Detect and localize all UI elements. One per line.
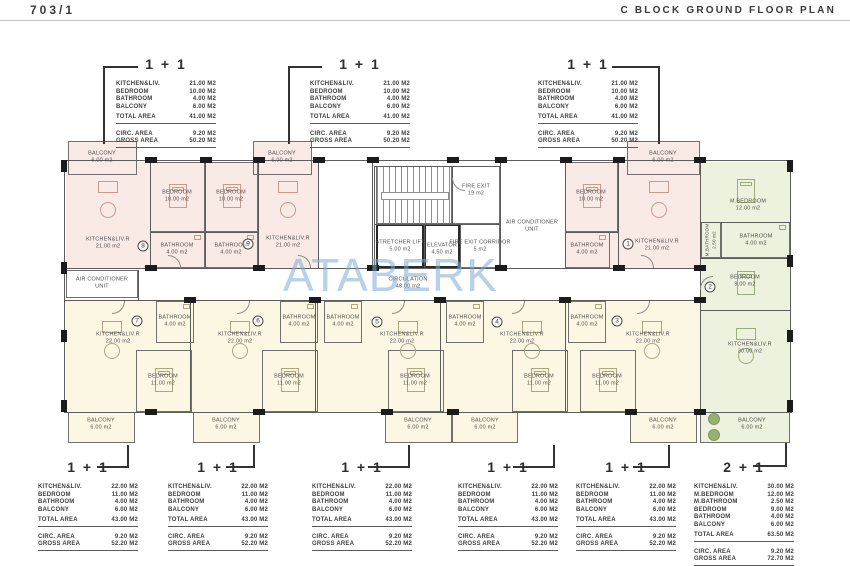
room-label-kitchen-unit1: KITCHEN&LIV.R21.00 m2 xyxy=(624,239,690,252)
spec-label: BALCONY xyxy=(310,104,341,112)
spec-value: 52.20 M2 xyxy=(640,541,676,549)
room-name: AIR CONDITIONER UNIT xyxy=(499,220,565,233)
spec-label: GROSS AREA xyxy=(458,541,500,549)
spec-label: TOTAL AREA xyxy=(310,114,350,122)
room-label-bedroom-unit5: BEDROOM11.00 m2 xyxy=(382,374,448,387)
spec-label: TOTAL AREA xyxy=(538,114,578,122)
structural-column xyxy=(381,409,393,415)
spec-value: 9.20 M2 xyxy=(602,131,638,139)
wall-segment xyxy=(64,412,792,413)
circulation-area-row: CIRC. AREA9.20 M2 xyxy=(538,131,638,139)
spec-value: 12.00 M2 xyxy=(758,492,794,500)
gross-area-row: GROSS AREA50.20 M2 xyxy=(538,138,638,148)
spec-row: BALCONY6.00 M2 xyxy=(312,507,412,515)
spec-value: 9.20 M2 xyxy=(376,534,412,542)
unit-number-9: 9 xyxy=(243,239,254,250)
spec-row: BATHROOM4.00 M2 xyxy=(458,499,558,507)
unit-type-title: 1 + 1 xyxy=(310,56,410,72)
room-label-kitchen-unit7: KITCHEN&LIV.R22.00 m2 xyxy=(85,332,151,345)
room-area: 11.00 m2 xyxy=(382,380,448,387)
title-bar: 703/1 C BLOCK GROUND FLOOR PLAN xyxy=(0,0,850,21)
unit-number-6: 6 xyxy=(253,316,264,327)
unit-spec-table-bottom-5: 2 + 1KITCHEN&LIV.30.00 M2M.BEDROOM12.00 … xyxy=(694,459,794,566)
dining-table-icon xyxy=(98,181,118,193)
spec-value: 9.20 M2 xyxy=(374,131,410,139)
room-area: 6.00 m2 xyxy=(385,424,451,431)
spec-label: KITCHEN&LIV. xyxy=(310,81,354,89)
structural-column xyxy=(61,262,67,274)
spec-label: BALCONY xyxy=(576,507,607,515)
room-area: 4.00 m2 xyxy=(310,321,376,328)
unit-type-title: 1 + 1 xyxy=(168,459,268,475)
spec-label: TOTAL AREA xyxy=(576,517,616,525)
unit-type-title: 1 + 1 xyxy=(538,56,638,72)
structural-column xyxy=(253,265,265,271)
room-label-bathroom-unit3: BATHROOM4.00 m2 xyxy=(554,315,620,328)
spec-value: 22.00 M2 xyxy=(376,484,412,492)
gross-area-row: GROSS AREA52.20 M2 xyxy=(168,541,268,551)
wall-segment xyxy=(318,162,319,268)
sink-icon xyxy=(307,304,314,309)
structural-column xyxy=(694,297,706,303)
spec-value: 4.00 M2 xyxy=(376,499,412,507)
leader-line xyxy=(288,66,290,144)
structural-column xyxy=(694,265,706,271)
spec-value: 50.20 M2 xyxy=(374,138,410,146)
structural-column xyxy=(447,157,459,163)
circulation-area-row: CIRC. AREA9.20 M2 xyxy=(116,131,216,139)
total-area-row: TOTAL AREA41.00 M2 xyxy=(116,114,216,124)
circulation-area-row: CIRC. AREA9.20 M2 xyxy=(310,131,410,139)
structural-column xyxy=(253,157,265,163)
table-icon xyxy=(280,202,296,218)
room-label-kitchen-unit9: KITCHEN&LIV.R21.00 m2 xyxy=(255,236,321,249)
spec-label: GROSS AREA xyxy=(538,138,580,146)
room-area: 19 m2 xyxy=(443,190,509,197)
spec-value: 63.50 M2 xyxy=(758,532,794,540)
spec-value: 9.20 M2 xyxy=(232,534,268,542)
spec-row: KITCHEN&LIV.22.00 M2 xyxy=(312,484,412,492)
wall-segment xyxy=(64,160,65,412)
room-label-bedroom-unit1: BEDROOM10.00 m2 xyxy=(558,190,624,203)
shrub-icon xyxy=(708,429,720,441)
spec-label: GROSS AREA xyxy=(576,541,618,549)
room-area: 6.00 m2 xyxy=(68,424,134,431)
room-name: M.BATHROOM xyxy=(705,219,712,261)
spec-label: GROSS AREA xyxy=(38,541,80,549)
room-label-balcony-unit6: BALCONY6.00 m2 xyxy=(193,418,259,431)
spec-label: KITCHEN&LIV. xyxy=(538,81,582,89)
spec-value: 43.00 M2 xyxy=(232,517,268,525)
room-label-kitchen-unit6: KITCHEN&LIV.R22.00 m2 xyxy=(207,332,273,345)
spec-label: CIRC. AREA xyxy=(458,534,495,542)
spec-row: BALCONY6.00 M2 xyxy=(458,507,558,515)
room-area: 6.00 m2 xyxy=(193,424,259,431)
spec-row: KITCHEN&LIV.22.00 M2 xyxy=(168,484,268,492)
room-area: 21.00 m2 xyxy=(624,245,690,252)
spec-label: BALCONY xyxy=(538,104,569,112)
room-area: 5 m2 xyxy=(447,246,513,253)
room-area: 11.00 m2 xyxy=(130,380,196,387)
spec-row: BEDROOM9.00 M2 xyxy=(694,507,794,515)
room-area: 11.00 m2 xyxy=(256,380,322,387)
spec-value: 2.50 M2 xyxy=(758,499,794,507)
spec-label: BEDROOM xyxy=(538,89,571,97)
spec-row: KITCHEN&LIV.22.00 M2 xyxy=(576,484,676,492)
spec-label: BEDROOM xyxy=(312,492,345,500)
spec-label: GROSS AREA xyxy=(694,556,736,564)
table-icon xyxy=(100,202,116,218)
spec-label: KITCHEN&LIV. xyxy=(576,484,620,492)
structural-column xyxy=(495,157,507,163)
spec-value: 10.00 M2 xyxy=(180,89,216,97)
circulation-area-row: CIRC. AREA9.20 M2 xyxy=(576,534,676,542)
spec-value: 43.00 M2 xyxy=(376,517,412,525)
unit-type-title: 1 + 1 xyxy=(458,459,558,475)
table-icon xyxy=(644,343,660,359)
spec-value: 11.00 M2 xyxy=(102,492,138,500)
spec-label: BEDROOM xyxy=(116,89,149,97)
wall-segment xyxy=(138,270,139,300)
spec-value: 9.00 M2 xyxy=(758,507,794,515)
table-icon xyxy=(104,343,120,359)
room-label-bathroom-unit5: BATHROOM4.00 m2 xyxy=(310,315,376,328)
spec-label: TOTAL AREA xyxy=(312,517,352,525)
spec-label: BATHROOM xyxy=(310,96,346,104)
room-label-bathroom-unit4: BATHROOM4.00 m2 xyxy=(432,315,498,328)
spec-value: 43.00 M2 xyxy=(522,517,558,525)
spec-value: 11.00 M2 xyxy=(232,492,268,500)
spec-row: BEDROOM11.00 M2 xyxy=(312,492,412,500)
stair-landing xyxy=(381,192,448,201)
spec-value: 30.00 M2 xyxy=(758,484,794,492)
dining-table-icon xyxy=(649,181,669,193)
room-area: 30.00 m2 xyxy=(717,348,783,355)
room-area: 48.00 m2 xyxy=(375,283,441,290)
gross-area-row: GROSS AREA52.20 M2 xyxy=(458,541,558,551)
unit-number-5: 5 xyxy=(372,317,383,328)
unit-number-3: 3 xyxy=(612,316,623,327)
spec-row: KITCHEN&LIV.22.00 M2 xyxy=(38,484,138,492)
spec-row: BEDROOM11.00 M2 xyxy=(576,492,676,500)
gross-area-row: GROSS AREA72.70 M2 xyxy=(694,556,794,566)
room-label-bedroom-unit3: BEDROOM11.00 m2 xyxy=(574,374,640,387)
spec-value: 4.00 M2 xyxy=(522,499,558,507)
room-area: 4.00 m2 xyxy=(198,249,264,256)
spec-value: 6.00 M2 xyxy=(232,507,268,515)
spec-value: 6.00 M2 xyxy=(374,104,410,112)
spec-row: BATHROOM4.00 M2 xyxy=(576,499,676,507)
room-label-balcony-unit5: BALCONY6.00 m2 xyxy=(385,418,451,431)
spec-label: BATHROOM xyxy=(312,499,348,507)
spec-row: BEDROOM10.00 M2 xyxy=(116,89,216,97)
spec-label: BATHROOM xyxy=(538,96,574,104)
spec-label: KITCHEN&LIV. xyxy=(694,484,738,492)
unit-spec-table-bottom-0: 1 + 1KITCHEN&LIV.22.00 M2BEDROOM11.00 M2… xyxy=(38,459,138,553)
structural-column xyxy=(145,265,157,271)
room-label-master-bathroom-unit2: M.BATHROOM2.50 m2 xyxy=(705,219,718,261)
spec-value: 21.00 M2 xyxy=(374,81,410,89)
spec-label: GROSS AREA xyxy=(168,541,210,549)
spec-label: BATHROOM xyxy=(458,499,494,507)
structural-column xyxy=(787,400,793,412)
spec-value: 4.00 M2 xyxy=(602,96,638,104)
room-label-balcony-unit3: BALCONY6.00 m2 xyxy=(630,418,696,431)
unit-type-title: 1 + 1 xyxy=(38,459,138,475)
spec-label: BEDROOM xyxy=(38,492,71,500)
room-label-bedroom-unit7: BEDROOM11.00 m2 xyxy=(130,374,196,387)
room-label-bathroom-unit7: BATHROOM4.00 m2 xyxy=(142,315,208,328)
unit-number-7: 7 xyxy=(132,316,143,327)
spec-label: TOTAL AREA xyxy=(168,517,208,525)
dining-table-icon xyxy=(278,181,298,193)
spec-label: CIRC. AREA xyxy=(116,131,153,139)
spec-label: BATHROOM xyxy=(168,499,204,507)
room-area: 6.00 m2 xyxy=(630,157,696,164)
spec-value: 4.00 M2 xyxy=(232,499,268,507)
wall-segment xyxy=(374,166,500,167)
spec-value: 6.00 M2 xyxy=(180,104,216,112)
gross-area-row: GROSS AREA50.20 M2 xyxy=(310,138,410,148)
spec-label: CIRC. AREA xyxy=(538,131,575,139)
unit-number-8: 8 xyxy=(138,241,149,252)
structural-column xyxy=(694,409,706,415)
room-label-balcony-unit7: BALCONY6.00 m2 xyxy=(68,418,134,431)
structural-column xyxy=(184,297,196,303)
total-area-row: TOTAL AREA43.00 M2 xyxy=(312,517,412,527)
spec-row: KITCHEN&LIV.21.00 M2 xyxy=(116,81,216,89)
room-area: 22.00 m2 xyxy=(207,338,273,345)
wall-segment xyxy=(374,166,375,268)
spec-label: KITCHEN&LIV. xyxy=(38,484,82,492)
structural-column xyxy=(367,157,379,163)
spec-label: M.BATHROOM xyxy=(694,499,738,507)
spec-value: 10.00 M2 xyxy=(374,89,410,97)
spec-label: BATHROOM xyxy=(38,499,74,507)
structural-column xyxy=(313,157,325,163)
room-label-balcony-unit2: BALCONY6.00 m2 xyxy=(719,418,785,431)
spec-label: KITCHEN&LIV. xyxy=(458,484,502,492)
spec-value: 9.20 M2 xyxy=(640,534,676,542)
spec-label: BALCONY xyxy=(458,507,489,515)
spec-label: BEDROOM xyxy=(576,492,609,500)
spec-label: BEDROOM xyxy=(168,492,201,500)
spec-label: CIRC. AREA xyxy=(310,131,347,139)
spec-row: KITCHEN&LIV.21.00 M2 xyxy=(538,81,638,89)
room-area: 11.00 m2 xyxy=(506,380,572,387)
spec-label: BALCONY xyxy=(312,507,343,515)
room-name: FIRE EXIT CORRIDOR xyxy=(447,240,513,247)
structural-column xyxy=(787,330,793,342)
spec-row: BEDROOM11.00 M2 xyxy=(38,492,138,500)
spec-label: BATHROOM xyxy=(116,96,152,104)
room-label-bedroom-unit4: BEDROOM11.00 m2 xyxy=(506,374,572,387)
room-area: 4.00 m2 xyxy=(432,321,498,328)
structural-column xyxy=(625,409,637,415)
room-label-kitchen-unit2: KITCHEN&LIV.R30.00 m2 xyxy=(717,342,783,355)
total-area-row: TOTAL AREA43.00 M2 xyxy=(168,517,268,527)
room-label-ac-unit-right: AIR CONDITIONER UNIT xyxy=(499,220,565,233)
spec-label: KITCHEN&LIV. xyxy=(116,81,160,89)
spec-value: 9.20 M2 xyxy=(758,549,794,557)
room-area: 9.00 m2 xyxy=(712,281,778,288)
table-icon xyxy=(524,343,540,359)
spec-row: BATHROOM4.00 M2 xyxy=(116,96,216,104)
spec-value: 43.00 M2 xyxy=(640,517,676,525)
spec-row: M.BEDROOM12.00 M2 xyxy=(694,492,794,500)
spec-value: 50.20 M2 xyxy=(180,138,216,146)
spec-row: KITCHEN&LIV.21.00 M2 xyxy=(310,81,410,89)
circulation-area-row: CIRC. AREA9.20 M2 xyxy=(38,534,138,542)
wall-segment xyxy=(374,224,500,225)
table-icon xyxy=(400,343,416,359)
room-area: 21.00 m2 xyxy=(75,243,141,250)
circulation-area-row: CIRC. AREA9.20 M2 xyxy=(694,549,794,557)
unit-number-4: 4 xyxy=(492,317,503,328)
leader-line xyxy=(658,66,660,144)
unit-spec-table-top-1: 1 + 1KITCHEN&LIV.21.00 M2BEDROOM10.00 M2… xyxy=(310,56,410,150)
spec-value: 11.00 M2 xyxy=(640,492,676,500)
room-label-bedroom-unit6: BEDROOM11.00 m2 xyxy=(256,374,322,387)
shrub-icon xyxy=(708,413,720,425)
spec-label: BALCONY xyxy=(116,104,147,112)
room-area: 22.00 m2 xyxy=(489,338,555,345)
gross-area-row: GROSS AREA52.20 M2 xyxy=(38,541,138,551)
room-area: 2.50 m2 xyxy=(711,219,718,261)
spec-row: BALCONY6.00 M2 xyxy=(694,522,794,530)
table-icon xyxy=(232,343,248,359)
spec-row: BALCONY6.00 M2 xyxy=(310,104,410,112)
spec-label: BEDROOM xyxy=(458,492,491,500)
spec-label: TOTAL AREA xyxy=(116,114,156,122)
pillow-icon xyxy=(740,182,752,186)
spec-value: 6.00 M2 xyxy=(602,104,638,112)
structural-column xyxy=(495,265,507,271)
room-name: AIR CONDITIONER UNIT xyxy=(69,277,135,290)
spec-row: BALCONY6.00 M2 xyxy=(38,507,138,515)
spec-value: 4.00 M2 xyxy=(180,96,216,104)
spec-label: BATHROOM xyxy=(576,499,612,507)
spec-value: 52.20 M2 xyxy=(522,541,558,549)
spec-value: 6.00 M2 xyxy=(376,507,412,515)
spec-value: 22.00 M2 xyxy=(102,484,138,492)
room-label-balcony-top-1: BALCONY6.00 m2 xyxy=(69,151,135,164)
total-area-row: TOTAL AREA43.00 M2 xyxy=(458,517,558,527)
unit-spec-table-bottom-1: 1 + 1KITCHEN&LIV.22.00 M2BEDROOM11.00 M2… xyxy=(168,459,268,553)
wall-segment xyxy=(64,268,701,269)
circulation-area-row: CIRC. AREA9.20 M2 xyxy=(458,534,558,542)
spec-label: KITCHEN&LIV. xyxy=(312,484,356,492)
spec-row: BATHROOM4.00 M2 xyxy=(38,499,138,507)
room-area: 4.00 m2 xyxy=(554,249,620,256)
room-area: 10.00 m2 xyxy=(198,196,264,203)
spec-row: BEDROOM11.00 M2 xyxy=(168,492,268,500)
gross-area-row: GROSS AREA50.20 M2 xyxy=(116,138,216,148)
spec-value: 22.00 M2 xyxy=(640,484,676,492)
room-label-bathroom-unit2: BATHROOM4.00 m2 xyxy=(723,234,789,247)
structural-column xyxy=(560,157,572,163)
spec-value: 41.00 M2 xyxy=(602,114,638,122)
unit-type-title: 2 + 1 xyxy=(694,459,794,475)
unit-spec-table-top-2: 1 + 1KITCHEN&LIV.21.00 M2BEDROOM10.00 M2… xyxy=(538,56,638,150)
spec-row: BATHROOM4.00 M2 xyxy=(310,96,410,104)
gross-area-row: GROSS AREA52.20 M2 xyxy=(312,541,412,551)
spec-value: 6.00 M2 xyxy=(102,507,138,515)
room-label-fire-exit-corridor: FIRE EXIT CORRIDOR5 m2 xyxy=(447,240,513,253)
spec-value: 22.00 M2 xyxy=(232,484,268,492)
room-area: 4.00 m2 xyxy=(554,321,620,328)
room-label-ac-unit-left: AIR CONDITIONER UNIT xyxy=(69,277,135,290)
room-label-bedroom-unit9: BEDROOM10.00 m2 xyxy=(198,190,264,203)
spec-value: 4.00 M2 xyxy=(758,514,794,522)
unit-spec-table-bottom-4: 1 + 1KITCHEN&LIV.22.00 M2BEDROOM11.00 M2… xyxy=(576,459,676,553)
wall-segment xyxy=(150,232,258,233)
spec-value: 52.20 M2 xyxy=(376,541,412,549)
unit-type-title: 1 + 1 xyxy=(312,459,412,475)
room-stairwell xyxy=(376,166,452,224)
spec-value: 72.70 M2 xyxy=(758,556,794,564)
spec-value: 6.00 M2 xyxy=(758,522,794,530)
spec-label: CIRC. AREA xyxy=(38,534,75,542)
room-label-kitchen-unit8: KITCHEN&LIV.R21.00 m2 xyxy=(75,237,141,250)
sink-icon xyxy=(473,304,480,309)
room-area: 21.00 m2 xyxy=(255,242,321,249)
wall-segment xyxy=(790,160,791,412)
sink-icon xyxy=(599,235,606,240)
room-label-master-bedroom-unit2: M.BEDROOM12.00 m2 xyxy=(715,199,781,212)
spec-label: M.BEDROOM xyxy=(694,492,734,500)
spec-value: 11.00 M2 xyxy=(522,492,558,500)
total-area-row: TOTAL AREA41.00 M2 xyxy=(538,114,638,124)
sheet-number: 703/1 xyxy=(30,3,75,17)
total-area-row: TOTAL AREA63.50 M2 xyxy=(694,532,794,542)
structural-column xyxy=(559,297,571,303)
spec-label: BEDROOM xyxy=(310,89,343,97)
wall-segment xyxy=(701,310,790,311)
spec-label: TOTAL AREA xyxy=(694,532,734,540)
spec-value: 50.20 M2 xyxy=(602,138,638,146)
unit-type-title: 1 + 1 xyxy=(576,459,676,475)
room-area: 6.00 m2 xyxy=(719,424,785,431)
structural-column xyxy=(434,297,446,303)
room-area: 11.00 m2 xyxy=(574,380,640,387)
spec-value: 4.00 M2 xyxy=(102,499,138,507)
total-area-row: TOTAL AREA43.00 M2 xyxy=(38,517,138,527)
structural-column xyxy=(145,409,157,415)
unit-number-1: 1 xyxy=(623,239,634,250)
room-label-balcony-unit4: BALCONY6.00 m2 xyxy=(452,418,518,431)
total-area-row: TOTAL AREA41.00 M2 xyxy=(310,114,410,124)
sink-icon xyxy=(779,225,786,230)
room-label-kitchen-unit4: KITCHEN&LIV.R22.00 m2 xyxy=(489,332,555,345)
spec-label: GROSS AREA xyxy=(116,138,158,146)
structural-column xyxy=(694,157,706,163)
room-label-bedroom-unit2: BEDROOM9.00 m2 xyxy=(712,275,778,288)
spec-row: BATHROOM4.00 M2 xyxy=(538,96,638,104)
spec-label: TOTAL AREA xyxy=(38,517,78,525)
room-area: 22.00 m2 xyxy=(615,338,681,345)
circulation-area-row: CIRC. AREA9.20 M2 xyxy=(168,534,268,542)
spec-value: 6.00 M2 xyxy=(522,507,558,515)
spec-label: CIRC. AREA xyxy=(694,549,731,557)
sink-icon xyxy=(351,304,358,309)
spec-label: BALCONY xyxy=(694,522,725,530)
spec-value: 9.20 M2 xyxy=(180,131,216,139)
spec-value: 9.20 M2 xyxy=(522,534,558,542)
spec-label: TOTAL AREA xyxy=(458,517,498,525)
structural-column xyxy=(309,297,321,303)
spec-row: BEDROOM10.00 M2 xyxy=(310,89,410,97)
